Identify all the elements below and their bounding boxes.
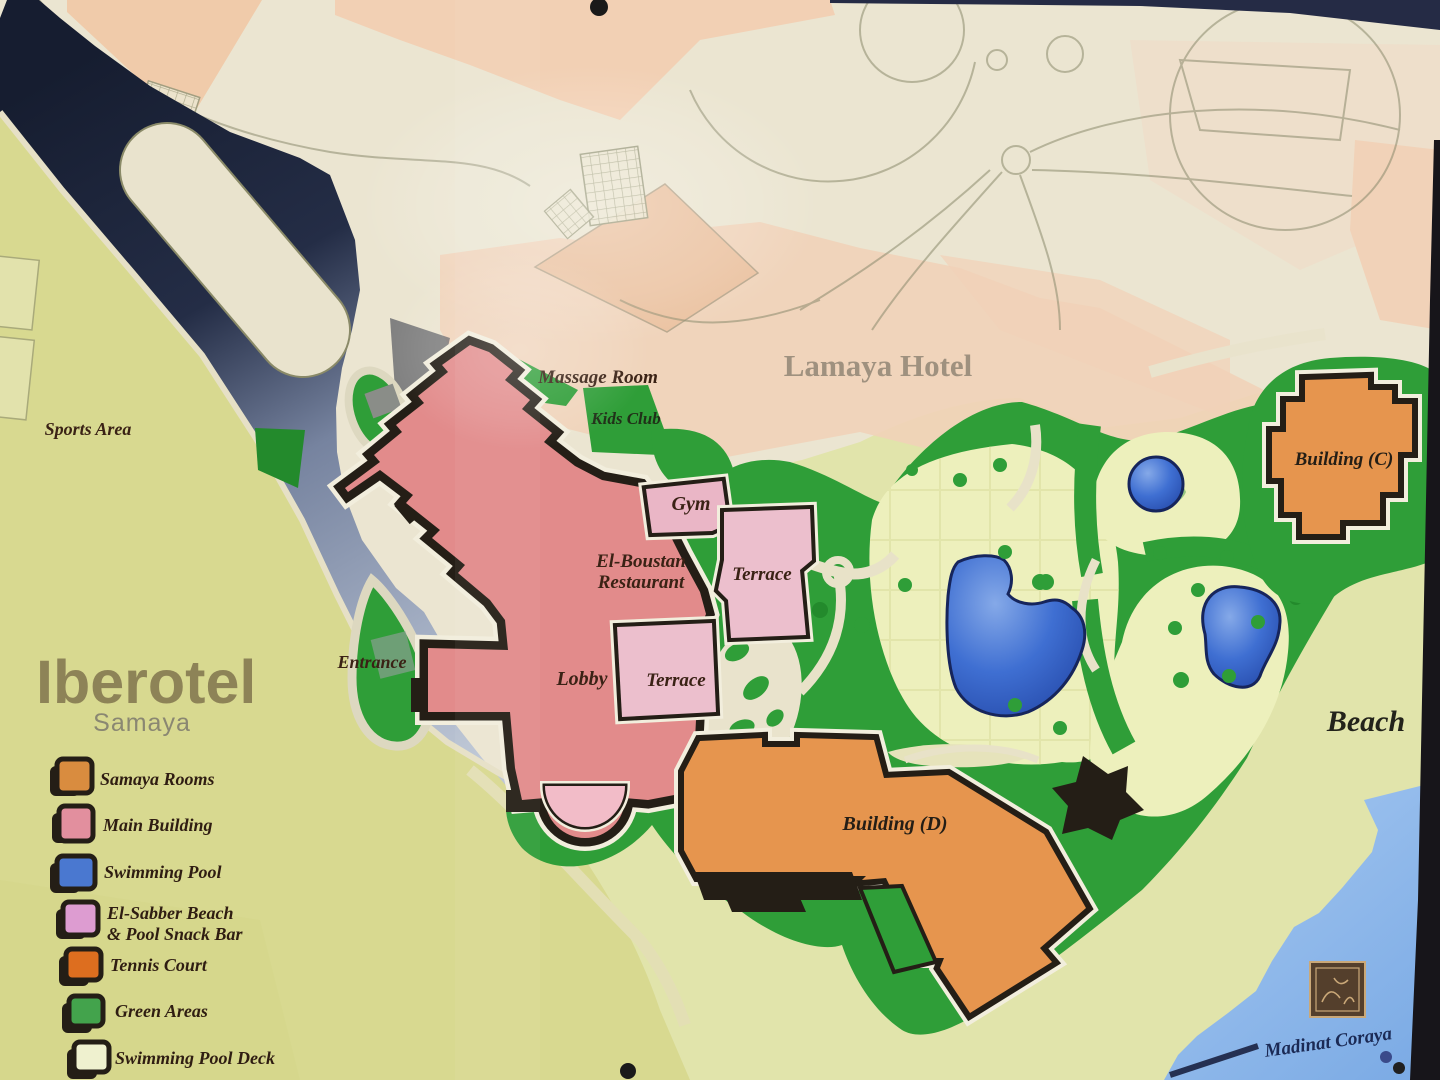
svg-text:Terrace: Terrace — [646, 670, 706, 691]
svg-text:Samaya Rooms: Samaya Rooms — [100, 769, 215, 789]
svg-text:Lobby: Lobby — [555, 668, 607, 690]
svg-text:Iberotel: Iberotel — [36, 648, 256, 716]
svg-text:Beach: Beach — [1326, 705, 1405, 738]
svg-text:Swimming Pool Deck: Swimming Pool Deck — [115, 1048, 275, 1068]
svg-text:El-Boustan: El-Boustan — [595, 551, 686, 572]
svg-text:Green Areas: Green Areas — [115, 1001, 208, 1021]
svg-text:Lamaya Hotel: Lamaya Hotel — [784, 348, 973, 383]
svg-text:Tennis Court: Tennis Court — [110, 955, 208, 975]
svg-text:Main Building: Main Building — [102, 815, 213, 835]
svg-text:Restaurant: Restaurant — [597, 572, 685, 593]
svg-text:& Pool Snack Bar: & Pool Snack Bar — [107, 924, 244, 944]
svg-text:Building (D): Building (D) — [841, 813, 947, 835]
svg-text:Building (C): Building (C) — [1294, 449, 1394, 470]
svg-text:El-Sabber Beach: El-Sabber Beach — [106, 903, 234, 923]
svg-text:Entrance: Entrance — [336, 652, 406, 672]
svg-text:Samaya: Samaya — [93, 709, 191, 737]
svg-text:Swimming Pool: Swimming Pool — [104, 862, 222, 882]
svg-text:Sports Area: Sports Area — [45, 419, 132, 439]
svg-text:Gym: Gym — [672, 493, 711, 515]
svg-text:Terrace: Terrace — [732, 564, 792, 585]
